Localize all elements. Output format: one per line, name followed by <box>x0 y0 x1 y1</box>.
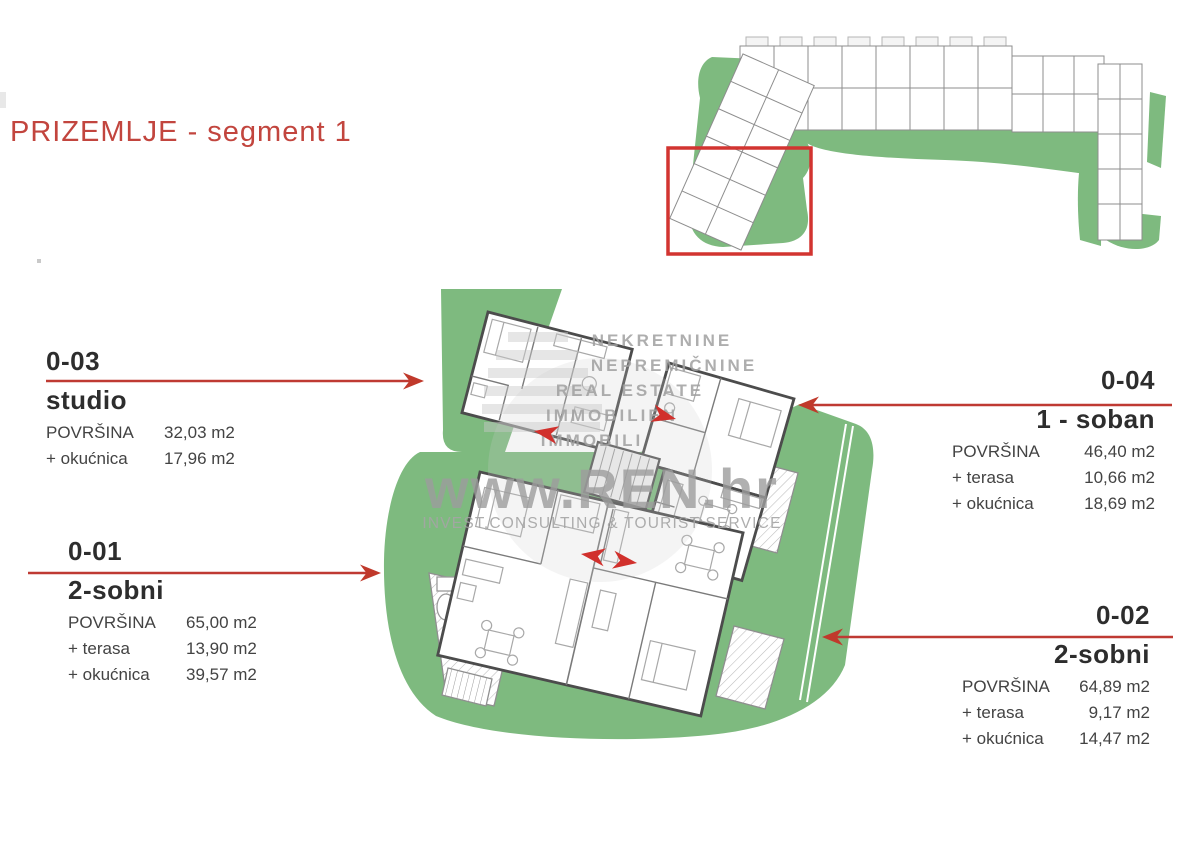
watermark-line: IMMOBILI <box>541 431 643 450</box>
area-label: POVRŠINA <box>46 420 164 446</box>
area-row: + okućnica 17,96 m2 <box>46 446 266 472</box>
area-value: 13,90 m2 <box>186 636 257 662</box>
watermark-site: www.REN.hr <box>424 457 779 520</box>
area-row: + okućnica 14,47 m2 <box>950 726 1150 752</box>
area-label: + terasa <box>952 465 1014 491</box>
unit-code: 0-02 <box>950 600 1150 630</box>
unit-label-0-03: 0-03 studio POVRŠINA 32,03 m2 + okućnica… <box>46 346 266 472</box>
area-row: + terasa 13,90 m2 <box>68 636 288 662</box>
area-label: + okućnica <box>962 726 1044 752</box>
area-value: 64,89 m2 <box>1079 674 1150 700</box>
area-value: 14,47 m2 <box>1079 726 1150 752</box>
watermark-line: REAL ESTATE <box>556 381 704 400</box>
area-label: + okućnica <box>952 491 1034 517</box>
area-row: POVRŠINA 46,40 m2 <box>940 439 1155 465</box>
area-value: 32,03 m2 <box>164 420 235 446</box>
area-label: + okućnica <box>68 662 186 688</box>
unit-type: 2-sobni <box>68 575 288 605</box>
area-row: + okućnica 18,69 m2 <box>940 491 1155 517</box>
unit-label-0-01: 0-01 2-sobni POVRŠINA 65,00 m2 + terasa … <box>68 536 288 688</box>
site-overview <box>668 37 1166 254</box>
area-row: POVRŠINA 65,00 m2 <box>68 610 288 636</box>
area-value: 39,57 m2 <box>186 662 257 688</box>
area-row: + terasa 9,17 m2 <box>950 700 1150 726</box>
area-value: 46,40 m2 <box>1084 439 1155 465</box>
area-label: + okućnica <box>46 446 164 472</box>
scan-artifact <box>37 259 41 263</box>
area-value: 18,69 m2 <box>1084 491 1155 517</box>
area-value: 17,96 m2 <box>164 446 235 472</box>
unit-type: 1 - soban <box>940 404 1155 434</box>
area-row: + terasa 10,66 m2 <box>940 465 1155 491</box>
area-row: POVRŠINA 32,03 m2 <box>46 420 266 446</box>
unit-rows: POVRŠINA 64,89 m2 + terasa 9,17 m2 + oku… <box>950 674 1150 752</box>
unit-rows: POVRŠINA 65,00 m2 + terasa 13,90 m2 + ok… <box>68 610 288 688</box>
unit-code: 0-01 <box>68 536 288 566</box>
floorplan-page: NEKRETNINE NEPREMIČNINE REAL ESTATE IMMO… <box>0 0 1200 846</box>
area-label: POVRŠINA <box>68 610 186 636</box>
area-row: POVRŠINA 64,89 m2 <box>950 674 1150 700</box>
watermark-line: NEPREMIČNINE <box>591 356 757 375</box>
area-label: + terasa <box>962 700 1024 726</box>
unit-label-0-02: 0-02 2-sobni POVRŠINA 64,89 m2 + terasa … <box>950 600 1150 752</box>
page-title: PRIZEMLJE - segment 1 <box>10 116 352 149</box>
scan-artifact <box>0 92 6 108</box>
unit-rows: POVRŠINA 46,40 m2 + terasa 10,66 m2 + ok… <box>940 439 1155 517</box>
area-value: 65,00 m2 <box>186 610 257 636</box>
area-label: + terasa <box>68 636 186 662</box>
area-value: 10,66 m2 <box>1084 465 1155 491</box>
area-value: 9,17 m2 <box>1089 700 1150 726</box>
area-label: POVRŠINA <box>952 439 1040 465</box>
unit-rows: POVRŠINA 32,03 m2 + okućnica 17,96 m2 <box>46 420 266 472</box>
unit-type: 2-sobni <box>950 639 1150 669</box>
unit-code: 0-04 <box>940 365 1155 395</box>
unit-code: 0-03 <box>46 346 266 376</box>
area-label: POVRŠINA <box>962 674 1050 700</box>
area-row: + okućnica 39,57 m2 <box>68 662 288 688</box>
watermark-subtitle: INVEST,CONSULTING & TOURIST SERVICE <box>422 515 781 532</box>
watermark-line: NEKRETNINE <box>592 331 733 350</box>
unit-type: studio <box>46 385 266 415</box>
unit-label-0-04: 0-04 1 - soban POVRŠINA 46,40 m2 + teras… <box>940 365 1155 517</box>
